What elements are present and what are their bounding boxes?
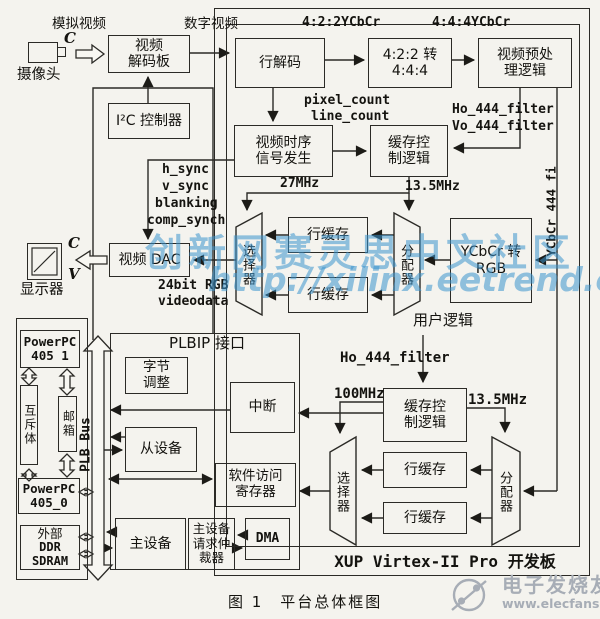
pixel-count-label: pixel_count [304,94,390,109]
arbiter-box: 主设备 请求仲 裁器 [188,518,235,570]
sw-register-box: 软件访问 寄存器 [215,463,296,507]
selector-lower-label: 选择器 [334,448,351,536]
vo444-label: Vo_444_filter [452,120,554,135]
hsync-label: h_sync [162,163,209,178]
distributor-upper-label: 分配器 [398,225,415,305]
digital-video-label: 数字视频 [184,17,238,33]
vsync-label: v_sync [162,180,209,195]
line-count-label: line_count [311,110,389,125]
figure-platform-block-diagram: 视频 解码板 I²C 控制器 视频 DAC 行解码 4:2:2 转 4:4:4 … [0,0,600,619]
24bit-rgb-label: 24bit RGB [158,279,228,294]
brand-name: 电子发烧友 [502,574,600,597]
byte-adjust-box: 字节 调整 [125,357,188,394]
ho444-upper-label: Ho_444_filter [452,103,554,118]
422-to-444-box: 4:2:2 转 4:4:4 [368,38,452,88]
camera-to-decoder-arrow [76,45,104,63]
27mhz-label: 27MHz [280,177,319,192]
display-icon [27,243,62,280]
master-box: 主设备 [115,518,186,570]
dma-box: DMA [245,518,290,560]
ycbcr444fi-label: YCbCr 444 fi [544,147,559,277]
buffer-ctrl-upper-box: 缓存控 制逻辑 [370,125,448,177]
dac-to-display-arrow [76,251,107,269]
interrupt-box: 中断 [230,382,295,433]
line-buffer-u1-box: 行缓存 [288,217,368,253]
line-buffer-d1-box: 行缓存 [383,452,467,488]
figure-caption: 图 1 平台总体框图 [228,591,382,612]
camera-lens [58,47,66,57]
brand-url: www.elecfans.com [502,597,600,611]
ppc0-box: PowerPC 405_0 [18,478,80,514]
ycbcr422-label: 4:2:2YCbCr [302,16,380,31]
line-buffer-u2-box: 行缓存 [288,277,368,313]
video-preproc-box: 视频预处 理逻辑 [478,38,572,88]
mutex-box: 互斥体 [20,385,38,465]
line-buffer-d2-box: 行缓存 [383,502,467,534]
ycbcr-to-rgb-box: YCbCr 转 RGB [450,218,532,303]
distributor-lower-label: 分配器 [497,448,514,536]
ycbcr444-label: 4:4:4YCbCr [432,16,510,31]
blanking-label: blanking [155,197,218,212]
ppc1-box: PowerPC 405 1 [20,330,80,368]
camera-icon [28,42,58,63]
display-c-label: C [68,235,80,252]
compsynch-label: comp_synch [147,214,225,229]
135mhz-lower-label: 13.5MHz [468,392,527,408]
camera-label: 摄像头 [17,67,61,84]
plbip-title: PLBIP 接口 [152,335,262,352]
display-label: 显示器 [20,282,64,299]
i2c-controller-box: I²C 控制器 [108,103,190,139]
video-timing-box: 视频时序 信号发生 [234,125,333,177]
selector-upper-label: 选择器 [240,225,257,305]
buffer-ctrl-lower-box: 缓存控 制逻辑 [383,388,467,442]
user-logic-label: 用户逻辑 [413,312,473,329]
analog-video-label: 模拟视频 [52,17,106,33]
135mhz-upper-label: 13.5MHz [405,180,460,195]
board-label: XUP Virtex-II Pro 开发板 [310,553,580,571]
plb-bus-label: PLB Bus [79,410,94,480]
slave-box: 从设备 [125,427,197,472]
video-dac-box: 视频 DAC [109,243,190,277]
mailbox-box: 邮箱 [58,396,77,452]
100mhz-label: 100MHz [334,386,385,402]
video-decoder-board-box: 视频 解码板 [108,35,190,73]
videodata-label: videodata [158,295,228,310]
elecfans-logo [452,580,486,610]
ddr-box: 外部 DDR SDRAM [20,525,80,570]
camera-c-label: C [64,30,76,47]
line-decode-box: 行解码 [235,38,325,88]
ho444-lower-label: Ho_444_filter [340,350,450,366]
display-v-label: V [68,266,80,283]
